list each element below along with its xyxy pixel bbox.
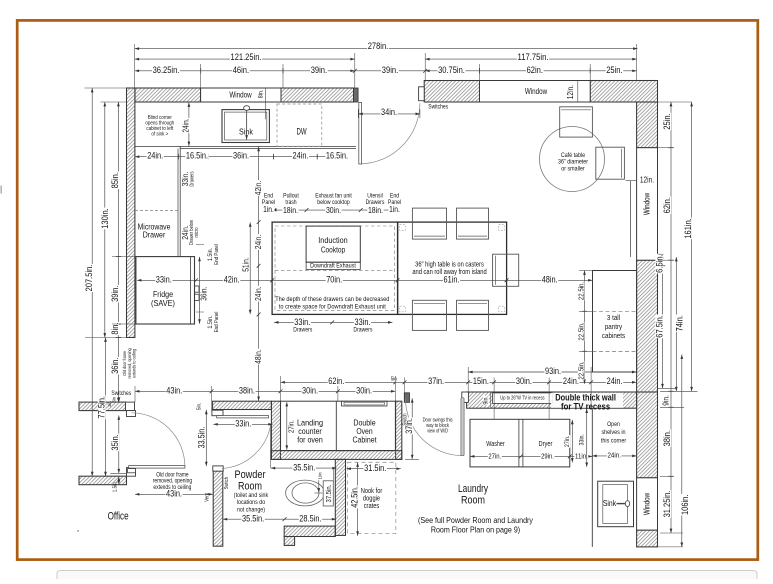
svg-text:117.75in.: 117.75in. [518, 52, 549, 62]
svg-text:24in.: 24in. [147, 151, 163, 161]
svg-text:9in.: 9in. [662, 395, 671, 406]
svg-text:36in.: 36in. [233, 151, 249, 161]
svg-text:removed, opening: removed, opening [153, 479, 192, 485]
svg-text:Room: Room [461, 495, 485, 507]
svg-text:43in.: 43in. [166, 386, 182, 396]
svg-text:Switches: Switches [428, 105, 448, 111]
svg-text:36in.: 36in. [110, 358, 120, 374]
svg-text:Office: Office [108, 511, 129, 523]
svg-text:121.25in.: 121.25in. [231, 52, 262, 62]
svg-text:62in.: 62in. [328, 376, 344, 386]
svg-text:12in.: 12in. [640, 176, 654, 185]
svg-text:67.5in.: 67.5in. [654, 315, 664, 338]
svg-text:1in.: 1in. [263, 205, 274, 214]
svg-text:62in.: 62in. [662, 197, 672, 213]
svg-text:1in.: 1in. [389, 205, 400, 214]
svg-text:18in.: 18in. [368, 205, 383, 215]
svg-text:Cabinet: Cabinet [352, 435, 377, 445]
svg-text:doggie: doggie [363, 495, 380, 502]
svg-text:Drawers: Drawers [293, 327, 312, 334]
svg-text:of sink >: of sink > [151, 131, 168, 137]
svg-text:Downdraft Exhaust: Downdraft Exhaust [310, 263, 356, 270]
svg-text:77.5in.: 77.5in. [97, 396, 107, 419]
svg-text:Drawer: Drawer [143, 230, 166, 240]
svg-text:33in.: 33in. [578, 434, 585, 446]
svg-text:16.5in.: 16.5in. [326, 151, 348, 161]
svg-text:24in.: 24in. [607, 451, 621, 460]
svg-text:24in.: 24in. [254, 235, 263, 250]
svg-text:Nook for: Nook for [361, 488, 383, 495]
svg-text:130in.: 130in. [100, 208, 110, 229]
svg-text:30.75in.: 30.75in. [438, 65, 465, 75]
svg-text:36" high table is on casters: 36" high table is on casters [415, 262, 484, 269]
svg-text:51in.: 51in. [242, 257, 251, 272]
svg-text:trash: trash [285, 199, 297, 206]
svg-text:Powder: Powder [235, 469, 266, 481]
svg-text:39in.: 39in. [110, 286, 120, 302]
svg-text:46in.: 46in. [233, 65, 249, 75]
svg-text:Drawers: Drawers [190, 171, 196, 187]
svg-text:End Panel: End Panel [214, 312, 220, 333]
svg-text:25in.: 25in. [662, 113, 672, 129]
svg-text:207.5in.: 207.5in. [84, 265, 94, 292]
svg-text:38in.: 38in. [662, 430, 672, 446]
svg-text:shelves in: shelves in [601, 429, 625, 436]
svg-text:278in.: 278in. [368, 41, 389, 51]
svg-text:61in.: 61in. [444, 275, 460, 285]
svg-text:24in.: 24in. [182, 118, 191, 132]
svg-text:12in.: 12in. [566, 85, 575, 99]
svg-text:22.5in.: 22.5in. [577, 282, 586, 300]
svg-text:locations do: locations do [237, 499, 266, 506]
svg-text:31.5in.: 31.5in. [364, 463, 386, 473]
svg-text:62in.: 62in. [527, 65, 543, 75]
svg-text:pantry: pantry [605, 322, 622, 331]
svg-text:Induction: Induction [318, 236, 347, 245]
svg-text:39in.: 39in. [311, 65, 327, 75]
svg-text:48in.: 48in. [542, 275, 558, 285]
svg-text:Window: Window [525, 87, 547, 96]
svg-text:27in.: 27in. [564, 436, 571, 448]
svg-text:Window: Window [643, 493, 652, 515]
svg-text:(SAVE): (SAVE) [151, 298, 175, 308]
svg-text:30in.: 30in. [326, 205, 341, 215]
svg-text:161in.: 161in. [683, 218, 693, 239]
svg-text:36in.: 36in. [200, 287, 209, 301]
svg-text:or smaller: or smaller [561, 165, 585, 172]
svg-text:37in.: 37in. [428, 376, 444, 386]
svg-text:35in.: 35in. [110, 434, 120, 450]
svg-text:Old door frame: Old door frame [156, 472, 189, 478]
svg-text:34in.: 34in. [381, 107, 397, 117]
svg-text:for oven: for oven [297, 435, 323, 445]
svg-text:85in.: 85in. [110, 172, 120, 188]
svg-text:27in.: 27in. [488, 451, 501, 460]
svg-text:(toilet and sink: (toilet and sink [234, 492, 269, 499]
svg-text:42.5in.: 42.5in. [350, 486, 360, 508]
svg-text:33in.: 33in. [294, 317, 310, 327]
svg-text:48in.: 48in. [254, 349, 263, 364]
svg-text:DW: DW [296, 127, 307, 137]
svg-text:Washer: Washer [486, 441, 505, 448]
svg-text:19in: 19in [318, 472, 323, 479]
svg-text:5in: 5in [391, 377, 397, 383]
svg-text:24in.: 24in. [293, 151, 309, 161]
svg-text:33in.: 33in. [235, 419, 251, 429]
svg-text:93in.: 93in. [545, 366, 561, 376]
svg-text:33in.: 33in. [156, 275, 172, 285]
svg-text:8in.: 8in. [257, 90, 264, 99]
svg-text:16.5in.: 16.5in. [186, 151, 208, 161]
svg-text:35.5in.: 35.5in. [242, 513, 264, 523]
svg-text:74in.: 74in. [675, 315, 685, 331]
svg-text:28.5in.: 28.5in. [299, 513, 321, 523]
svg-text:to create space for Downdraft: to create space for Downdraft Exhaust un… [279, 303, 386, 310]
svg-text:42in.: 42in. [254, 181, 263, 196]
svg-text:30in.: 30in. [356, 386, 372, 396]
svg-text:view of W/D: view of W/D [427, 429, 448, 435]
svg-text:Up to 26"W TV in recess: Up to 26"W TV in recess [500, 395, 545, 401]
svg-text:106in.: 106in. [680, 495, 690, 516]
svg-text:70in.: 70in. [326, 275, 342, 285]
svg-text:Open: Open [607, 421, 620, 428]
svg-text:18in.: 18in. [283, 205, 298, 215]
svg-text:cabinets: cabinets [602, 331, 625, 340]
svg-text:Drawers: Drawers [353, 327, 372, 334]
svg-text:33.5in.: 33.5in. [197, 427, 207, 449]
svg-text:22.5in.: 22.5in. [577, 322, 586, 340]
svg-text:33in.: 33in. [355, 317, 371, 327]
svg-text:Vent: Vent [205, 493, 211, 502]
svg-text:extends to ceiling: extends to ceiling [131, 348, 136, 377]
svg-text:38in.: 38in. [239, 386, 255, 396]
svg-text:3 tall: 3 tall [607, 313, 620, 322]
svg-text:The depth of these drawers can: The depth of these drawers can be decrea… [275, 296, 389, 303]
svg-text:5in: 5in [111, 397, 117, 403]
svg-text:crates: crates [364, 503, 380, 510]
svg-text:not change): not change) [237, 506, 265, 513]
svg-text:11in.: 11in. [575, 451, 588, 460]
svg-text:Dryer: Dryer [539, 441, 553, 448]
svg-text:27in.: 27in. [287, 420, 296, 433]
svg-text:below cooktop: below cooktop [317, 199, 350, 206]
svg-text:29in.: 29in. [541, 451, 554, 460]
svg-text:31.25in.: 31.25in. [662, 491, 672, 518]
svg-text:Room: Room [238, 481, 262, 493]
svg-text:Switch: Switch [224, 477, 230, 489]
svg-text:6.5in.: 6.5in. [654, 254, 664, 273]
svg-text:(See full Powder Room and Laun: (See full Powder Room and Laundry [418, 515, 534, 525]
svg-text:for TV recess: for TV recess [561, 402, 610, 412]
svg-text:Sink: Sink [603, 499, 617, 508]
svg-text:36.25in.: 36.25in. [153, 65, 180, 75]
svg-text:Switches: Switches [111, 391, 131, 397]
svg-text:30in.: 30in. [302, 386, 318, 396]
svg-text:25in.: 25in. [606, 65, 622, 75]
svg-text:this corner: this corner [601, 437, 627, 444]
svg-text:1.5in.: 1.5in. [113, 481, 119, 493]
svg-text:micro: micro [194, 227, 200, 237]
svg-text:9in.: 9in. [483, 396, 490, 405]
svg-text:30in.: 30in. [516, 376, 532, 386]
svg-text:End Panel: End Panel [214, 244, 220, 265]
svg-text:Cooktop: Cooktop [321, 246, 346, 255]
svg-text:39in.: 39in. [382, 65, 398, 75]
svg-text:extends to ceiling: extends to ceiling [153, 485, 191, 491]
svg-text:Window: Window [642, 193, 651, 215]
svg-text:24in.: 24in. [607, 376, 623, 386]
svg-text:42in.: 42in. [224, 275, 240, 285]
svg-text:Room Floor Plan on page 9): Room Floor Plan on page 9) [431, 524, 520, 534]
svg-text:37.5in.: 37.5in. [324, 485, 333, 503]
svg-text:5in.: 5in. [197, 402, 203, 410]
svg-text:15in.: 15in. [473, 376, 489, 386]
svg-text:24in.: 24in. [254, 286, 263, 301]
svg-text:35.5in.: 35.5in. [293, 462, 315, 472]
svg-text:Window: Window [229, 91, 251, 100]
svg-text:Laundry: Laundry [458, 483, 488, 495]
svg-text:Switch: Switch [402, 413, 408, 425]
svg-text:Drawers: Drawers [366, 199, 385, 206]
svg-text:22.5in.: 22.5in. [577, 361, 586, 379]
